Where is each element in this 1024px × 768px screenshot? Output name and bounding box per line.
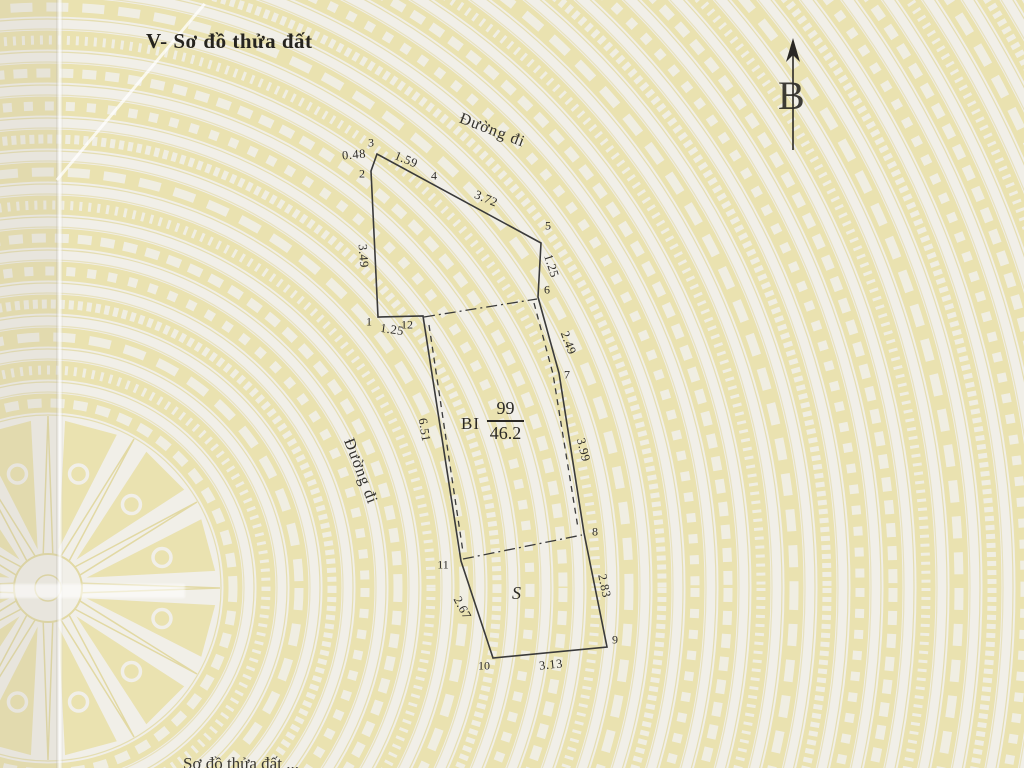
parcel-area: 46.2	[490, 424, 522, 443]
subdivision-dashed-line	[429, 325, 463, 552]
subdivision-dashed-line	[424, 299, 537, 317]
section-symbol: S	[512, 583, 521, 604]
bottom-caption-clipped: Sơ đồ thửa đất ...	[183, 754, 299, 768]
page-title: V- Sơ đồ thửa đất	[146, 29, 313, 54]
parcel-number-area-fraction: 99 46.2	[487, 399, 524, 443]
subdivision-dashed-line	[463, 535, 582, 559]
north-label: B	[778, 72, 805, 119]
parcel-id-label: BI 99 46.2	[461, 399, 524, 443]
parcel-block-code: BI	[461, 408, 480, 434]
parcel-number: 99	[497, 399, 515, 418]
parcel-diagram	[0, 0, 1024, 768]
subdivision-dashed-line	[534, 303, 578, 528]
scanned-document-page: V- Sơ đồ thửa đất Đường đi Đường đi B BI…	[0, 0, 1024, 768]
fraction-bar	[487, 420, 524, 422]
